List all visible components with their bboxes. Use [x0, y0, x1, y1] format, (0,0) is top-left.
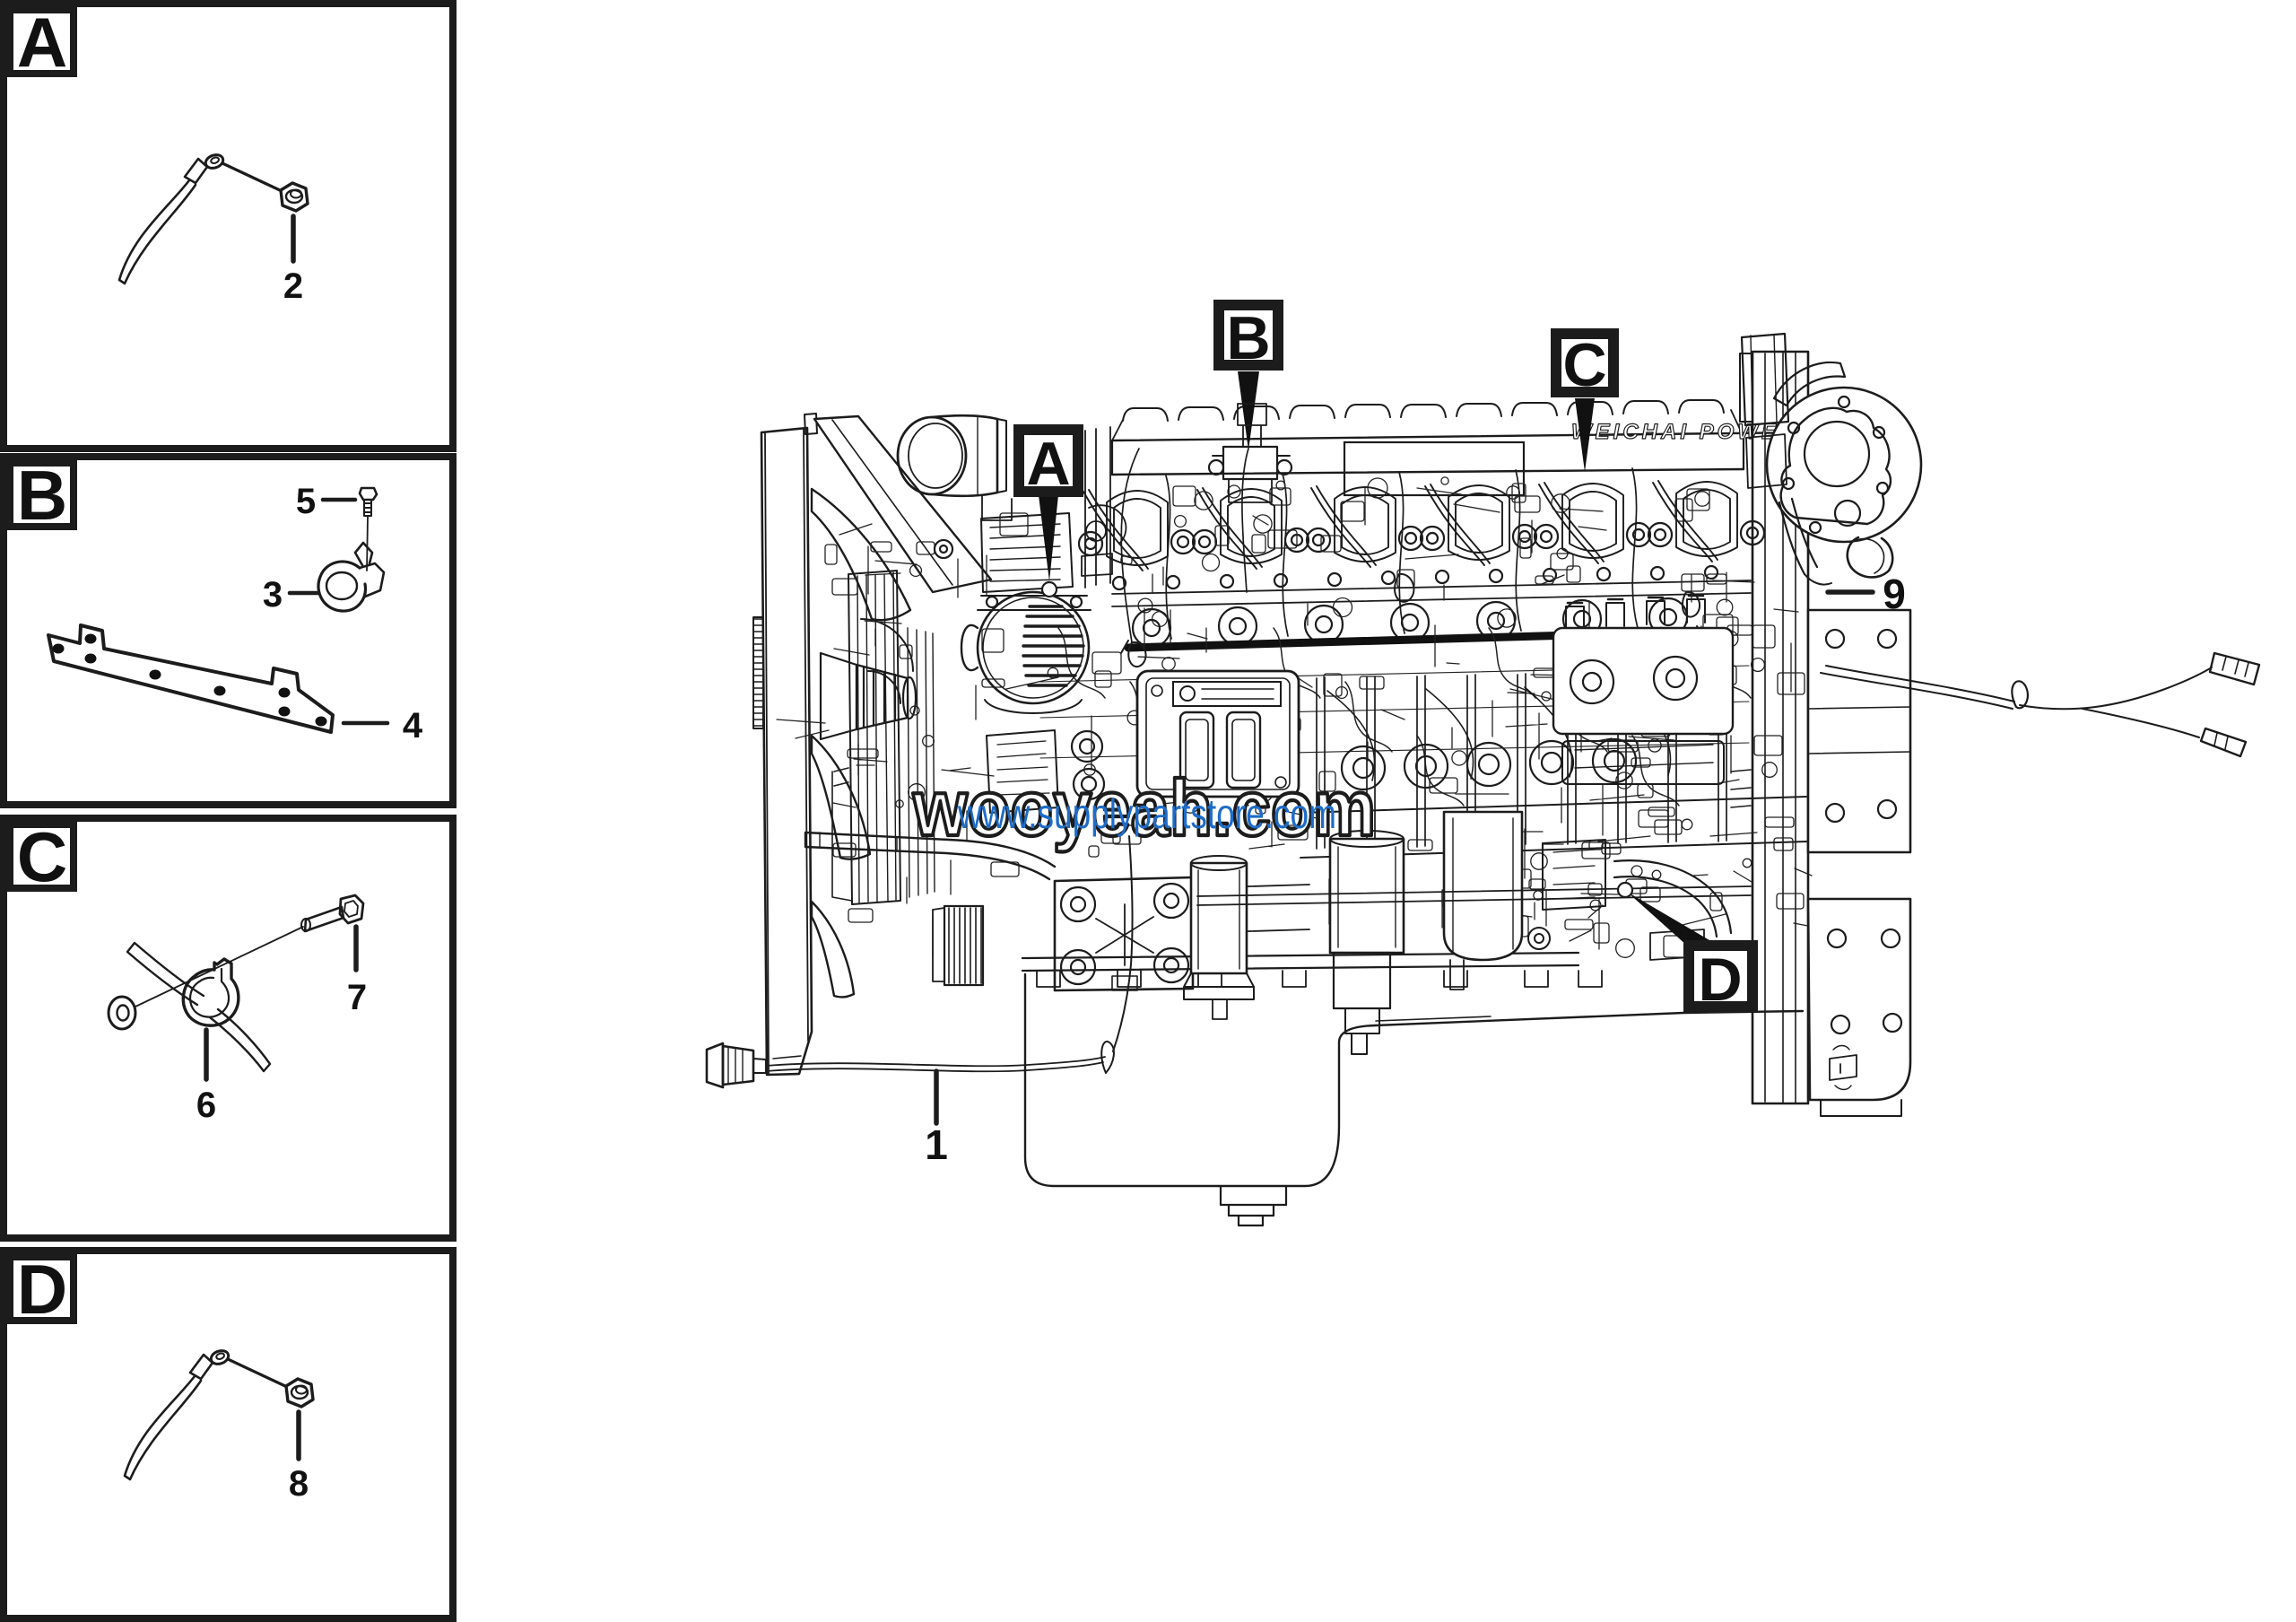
svg-text:7: 7	[347, 978, 367, 1017]
svg-text:D: D	[1698, 946, 1742, 1014]
svg-text:4: 4	[403, 706, 423, 746]
svg-text:1: 1	[925, 1121, 948, 1168]
svg-text:9: 9	[1883, 571, 1906, 617]
svg-text:D: D	[17, 1250, 67, 1329]
svg-text:5: 5	[296, 482, 316, 521]
svg-text:A: A	[1026, 430, 1070, 498]
svg-text:B: B	[1226, 304, 1270, 372]
svg-text:A: A	[17, 3, 67, 82]
svg-text:B: B	[17, 456, 67, 535]
svg-text:C: C	[1562, 331, 1606, 399]
svg-text:www.supplypartstore.com: www.supplypartstore.com	[957, 790, 1336, 837]
svg-text:C: C	[17, 817, 67, 896]
svg-text:3: 3	[263, 575, 283, 615]
svg-text:8: 8	[289, 1464, 309, 1504]
svg-text:6: 6	[196, 1086, 216, 1125]
svg-text:2: 2	[283, 266, 303, 306]
